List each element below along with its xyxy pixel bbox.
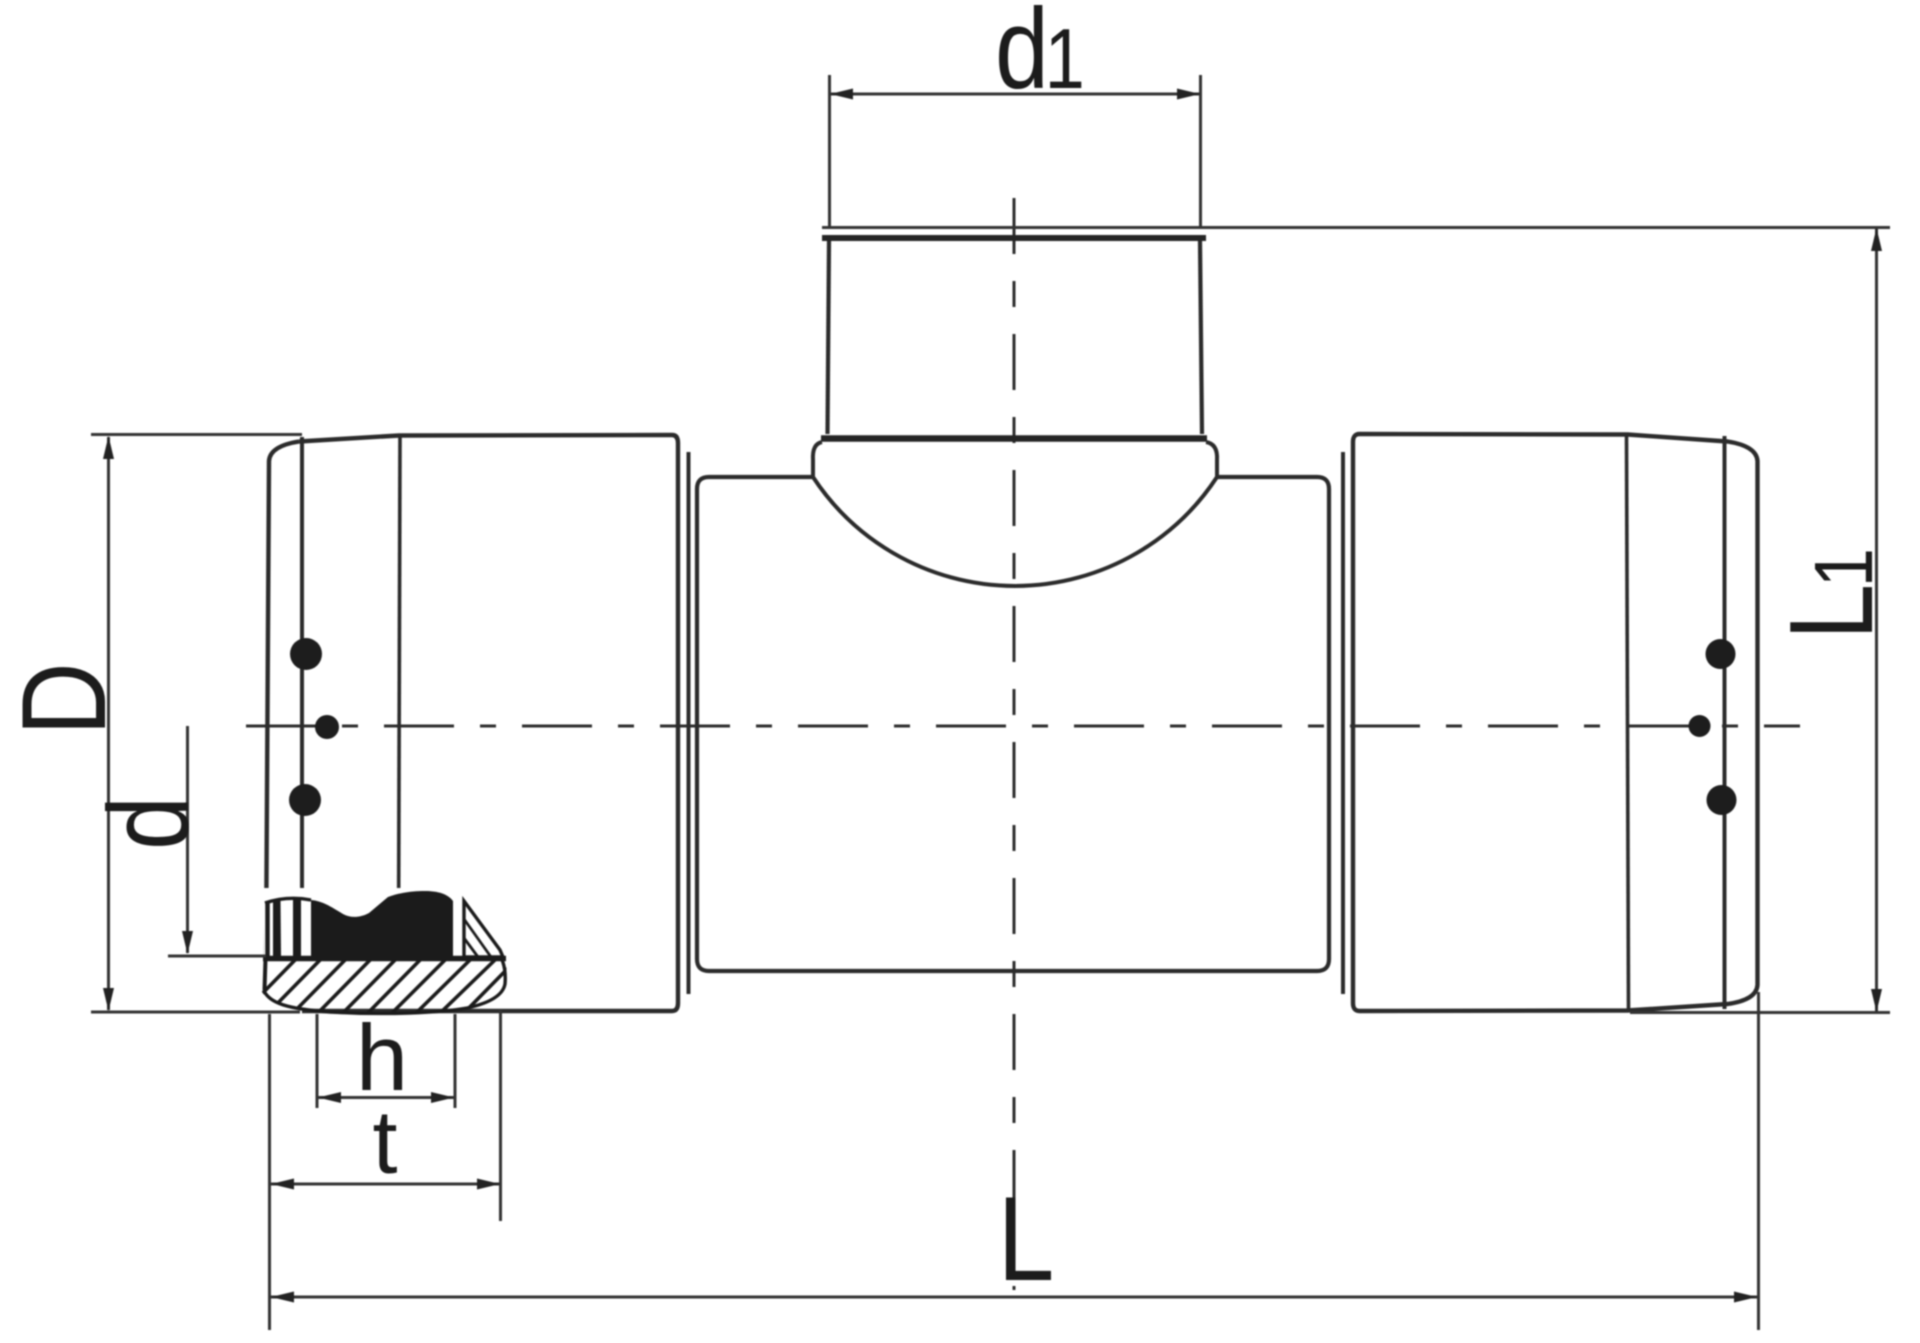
svg-text:D: D	[0, 662, 131, 736]
svg-text:L: L	[998, 1171, 1055, 1306]
svg-text:d1: d1	[995, 0, 1085, 113]
svg-text:t: t	[372, 1093, 397, 1193]
svg-text:d: d	[86, 796, 213, 850]
